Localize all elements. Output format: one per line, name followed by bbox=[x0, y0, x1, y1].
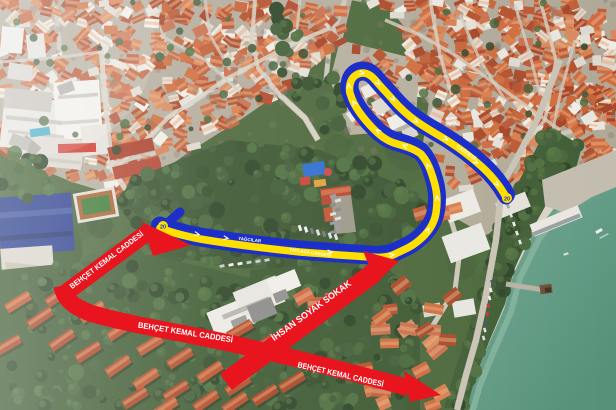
svg-text:20: 20 bbox=[504, 197, 510, 203]
svg-text:20: 20 bbox=[160, 225, 166, 231]
